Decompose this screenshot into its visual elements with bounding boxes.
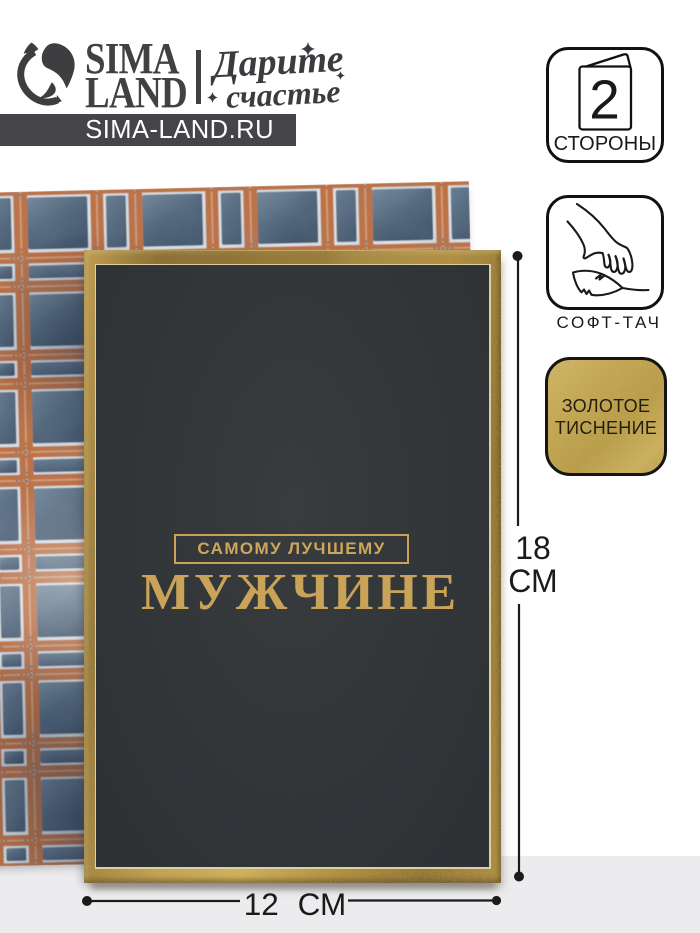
svg-text:2: 2 — [589, 69, 620, 131]
